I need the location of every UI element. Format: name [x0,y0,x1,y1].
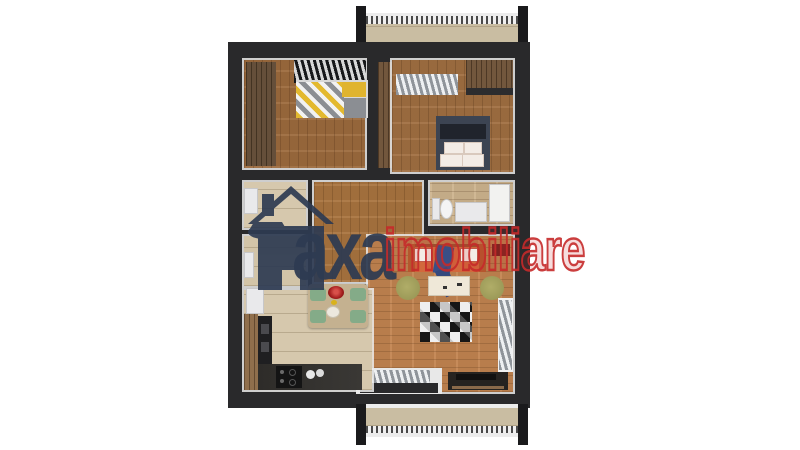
balcony-bottom-post-right [518,404,528,445]
balcony-top-railing [366,16,518,24]
bottom-window-curtain [368,370,430,384]
side-decor-red [492,244,510,256]
bedroom2-bed [436,116,490,170]
serving-plate [326,306,340,318]
kitchen-side-counter [244,314,258,390]
coffee-table [428,276,470,296]
balcony-bottom-floor [366,408,518,426]
sink-basin-1 [306,370,315,379]
balcony-bottom-railing [366,426,518,433]
bed1-chevron-blanket [296,82,344,118]
utility-fixture [244,252,254,278]
toilet-bowl [440,199,453,219]
bed2-pillow-2 [464,142,482,154]
bathroom-vanity [455,202,487,222]
red-bowl [328,286,344,299]
stove [276,366,302,388]
stove-burner-1 [289,369,296,376]
toilet-tank [432,198,440,220]
dining-chair-2 [350,288,366,301]
bed2-pillow-4 [462,154,484,167]
sink-basin-2 [316,369,324,377]
bathroom-door [489,184,510,222]
kitchen-bottom-counter [258,364,362,390]
lemon-decor [331,300,337,305]
bed2-pillow-1 [444,142,464,154]
oven-column [258,316,272,366]
bed1-gray-throw [344,98,366,118]
right-window-curtain [499,300,512,370]
dining-chair-3 [310,310,326,323]
tv-console [448,372,508,390]
pouf-left [396,276,420,300]
washing-machine [244,188,258,214]
oven-window-1 [261,324,269,334]
oven-window-2 [261,342,269,352]
pouf-right [480,276,504,300]
sofa-arm-right [479,244,486,272]
dining-chair-4 [350,310,366,323]
sofa [408,244,486,272]
bedroom2-door-panel [378,62,392,168]
tv-screen [456,374,496,380]
fridge [246,288,264,314]
coffee-table-item-2 [457,283,462,286]
stove-knob-2 [280,379,284,383]
sofa-pillow-left [414,248,432,262]
bedroom2-wardrobe-front [466,88,513,95]
bedroom2-curtain [396,74,458,95]
stove-burner-2 [289,379,296,386]
sofa-pillow-right [460,248,478,262]
floorplan-canvas: axa imobiliare [0,0,800,450]
dining-chair-1 [310,288,326,301]
console-wood-edge [452,386,504,389]
bed2-pillow-3 [440,154,464,167]
stove-knob-1 [280,370,284,374]
bed2-dark-band [440,124,486,139]
balcony-bottom-post-left [356,404,366,445]
checkered-rug [420,302,472,342]
bedroom1-wardrobe [246,62,276,166]
bed1-yellow-pillow [342,82,366,97]
bedroom1-bed [296,80,368,118]
coffee-table-item-1 [443,286,447,289]
